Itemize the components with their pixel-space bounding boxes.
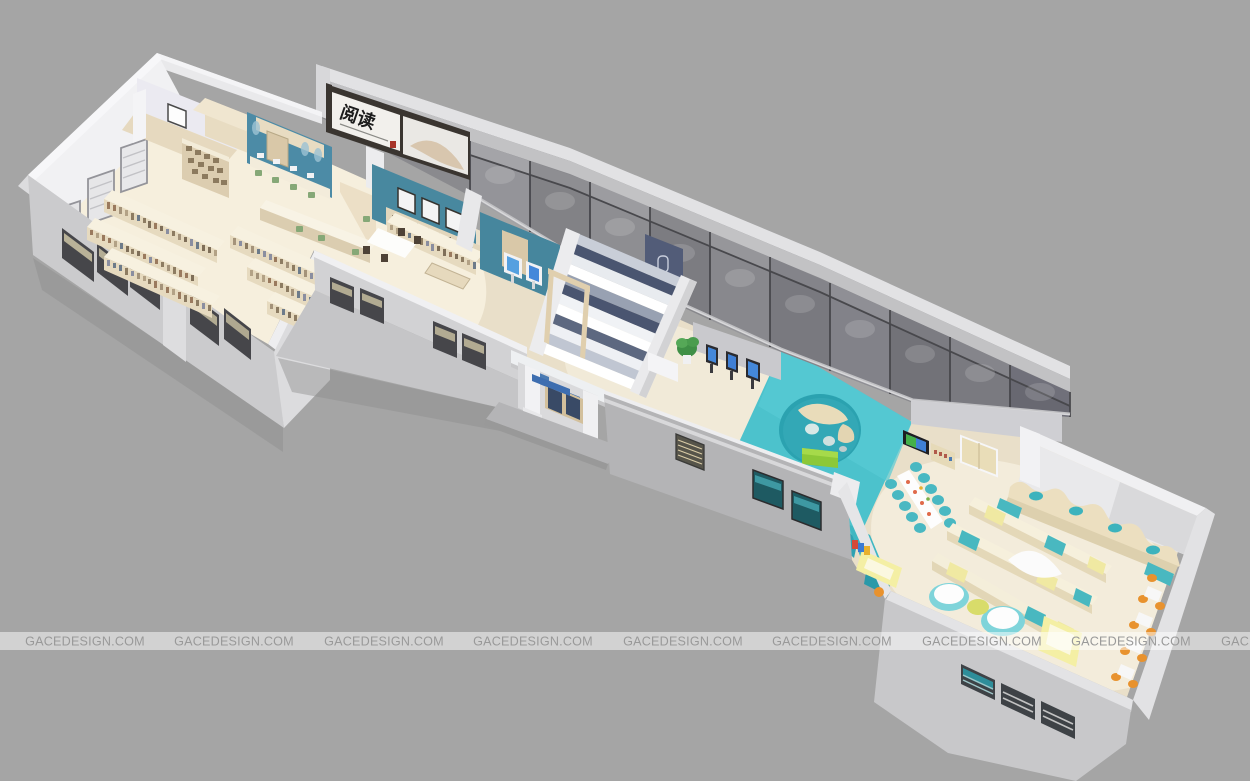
svg-text:GACEDESIGN.COM: GACEDESIGN.COM <box>1221 635 1250 649</box>
svg-text:GACEDESIGN.COM: GACEDESIGN.COM <box>174 635 294 649</box>
svg-text:GACEDESIGN.COM: GACEDESIGN.COM <box>473 635 593 649</box>
svg-text:GACEDESIGN.COM: GACEDESIGN.COM <box>324 635 444 649</box>
svg-text:GACEDESIGN.COM: GACEDESIGN.COM <box>772 635 892 649</box>
svg-text:GACEDESIGN.COM: GACEDESIGN.COM <box>623 635 743 649</box>
svg-text:GACEDESIGN.COM: GACEDESIGN.COM <box>25 635 145 649</box>
svg-text:GACEDESIGN.COM: GACEDESIGN.COM <box>922 635 1042 649</box>
svg-text:GACEDESIGN.COM: GACEDESIGN.COM <box>1071 635 1191 649</box>
